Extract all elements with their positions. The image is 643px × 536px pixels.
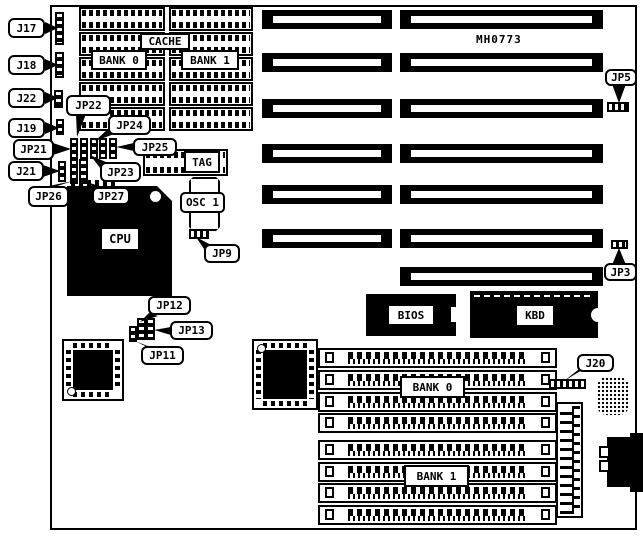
isa-slot-segment [262, 229, 392, 248]
din-pin-block [599, 460, 610, 472]
simm-clip [541, 487, 550, 498]
callout-jp3: JP3 [604, 263, 637, 281]
callout-jp5: JP5 [605, 69, 637, 86]
callout-j19: J19 [8, 118, 45, 138]
qfp-pins [256, 350, 261, 399]
cache-chip [169, 107, 253, 131]
power-connector [556, 402, 583, 518]
part-number-text: MH0773 [476, 33, 522, 46]
callout-jp27: JP27 [92, 187, 130, 205]
qfp-pin1-dot [67, 387, 76, 396]
isa-slot-segment [400, 185, 603, 204]
motherboard-diagram: MH0773 CACHE BANK 0 BANK 1 TAG OSC 1 CPU… [0, 0, 643, 536]
callout-jp26: JP26 [28, 186, 69, 207]
jumper-jp5 [607, 102, 629, 112]
simm-bank1-label: BANK 1 [404, 465, 469, 487]
jumper-j17 [55, 12, 64, 45]
simm-slot [318, 348, 557, 368]
callout-jp9: JP9 [204, 244, 240, 263]
callout-j20: J20 [577, 354, 614, 372]
simm-bank0-label: BANK 0 [400, 376, 465, 398]
callout-jp24: JP24 [108, 115, 151, 135]
cache-bank1-label: BANK 1 [181, 50, 239, 70]
cpu-pin1-dot [150, 191, 161, 202]
qfp-pins [115, 350, 120, 390]
jumper-jp25 [109, 138, 117, 159]
callout-jp22: JP22 [66, 95, 111, 116]
jumper-j19 [56, 119, 64, 135]
cpu-label: CPU [102, 229, 138, 249]
qfp-pin1-dot [257, 344, 266, 353]
callout-j21: J21 [8, 161, 44, 181]
cache-chip [79, 7, 165, 31]
callout-j18: J18 [8, 55, 45, 75]
isa-slot-segment [262, 10, 392, 29]
power-connector-pins [574, 406, 580, 514]
jumper-jp22 [80, 138, 88, 159]
jumper-j18 [55, 52, 64, 78]
callout-jp25: JP25 [133, 138, 177, 156]
cache-chip [169, 7, 253, 31]
qfp-pins [73, 392, 113, 397]
simm-clip [325, 417, 334, 428]
kbd-dashed-line [474, 295, 594, 297]
tag-label: TAG [184, 151, 220, 173]
simm-clip [541, 396, 550, 407]
qfp-pins [263, 401, 307, 406]
bios-notch [451, 307, 456, 322]
jumper-j22 [54, 90, 63, 108]
jumper-j20 [549, 379, 586, 389]
callout-j22: J22 [8, 88, 45, 108]
jumper-jp24 [99, 138, 107, 159]
jumper-jp21 [70, 138, 78, 159]
power-connector-cells [560, 406, 574, 514]
kbd-label: KBD [516, 305, 554, 326]
callout-jp21: JP21 [13, 139, 54, 160]
cache-label: CACHE [140, 33, 190, 50]
callout-jp11: JP11 [141, 346, 184, 365]
jumper-jp13 [146, 318, 155, 340]
simm-clip [325, 444, 334, 455]
simm-clip [325, 509, 334, 520]
simm-clip [541, 466, 550, 477]
simm-clip [325, 466, 334, 477]
callout-jp13: JP13 [170, 321, 213, 340]
isa-slot-segment [400, 53, 603, 72]
simm-slot [318, 440, 557, 460]
jumper-jp23 [90, 138, 98, 159]
isa-slot-segment [400, 10, 603, 29]
qfp-pins [309, 350, 314, 399]
jumper-jp3 [611, 240, 628, 249]
isa-slot-segment [400, 267, 603, 286]
isa-slot-segment [262, 99, 392, 118]
jumper-jp12 [137, 318, 146, 340]
isa-slot-segment [400, 144, 603, 163]
kbd-notch [591, 308, 598, 322]
callout-jp23: JP23 [100, 162, 141, 182]
simm-clip [541, 509, 550, 520]
qfp-pins [73, 343, 113, 348]
simm-clip [541, 417, 550, 428]
isa-slot-segment [262, 185, 392, 204]
simm-clip [325, 352, 334, 363]
jumper-jp11 [129, 326, 137, 342]
qfp-pins [66, 350, 71, 390]
qfp-chip-2 [252, 339, 318, 410]
osc1-label: OSC 1 [180, 192, 225, 213]
callout-jp12: JP12 [148, 296, 191, 315]
qfp-pins [263, 343, 307, 348]
simm-clip [541, 444, 550, 455]
cache-bank0-label: BANK 0 [91, 50, 147, 70]
isa-slot-segment [262, 144, 392, 163]
simm-slot [318, 505, 557, 525]
qfp-core [73, 350, 113, 390]
qfp-chip-1 [62, 339, 124, 401]
keyboard-din-flange [630, 433, 643, 492]
simm-clip [325, 374, 334, 385]
isa-slot-segment [400, 229, 603, 248]
jumper-jp9 [189, 229, 209, 239]
jumper-jp27 [79, 159, 88, 184]
speaker [597, 377, 629, 415]
simm-clip [325, 396, 334, 407]
din-pin-block [599, 446, 610, 458]
isa-slot-segment [400, 99, 603, 118]
isa-slot-segment [262, 53, 392, 72]
bios-label: BIOS [388, 305, 434, 325]
jumper-j21 [58, 161, 66, 182]
jumper-jp26 [70, 159, 78, 184]
qfp-core [263, 350, 307, 399]
simm-slot [318, 413, 557, 433]
callout-j17: J17 [8, 18, 45, 38]
cache-chip [169, 82, 253, 106]
simm-clip [541, 352, 550, 363]
simm-clip [325, 487, 334, 498]
